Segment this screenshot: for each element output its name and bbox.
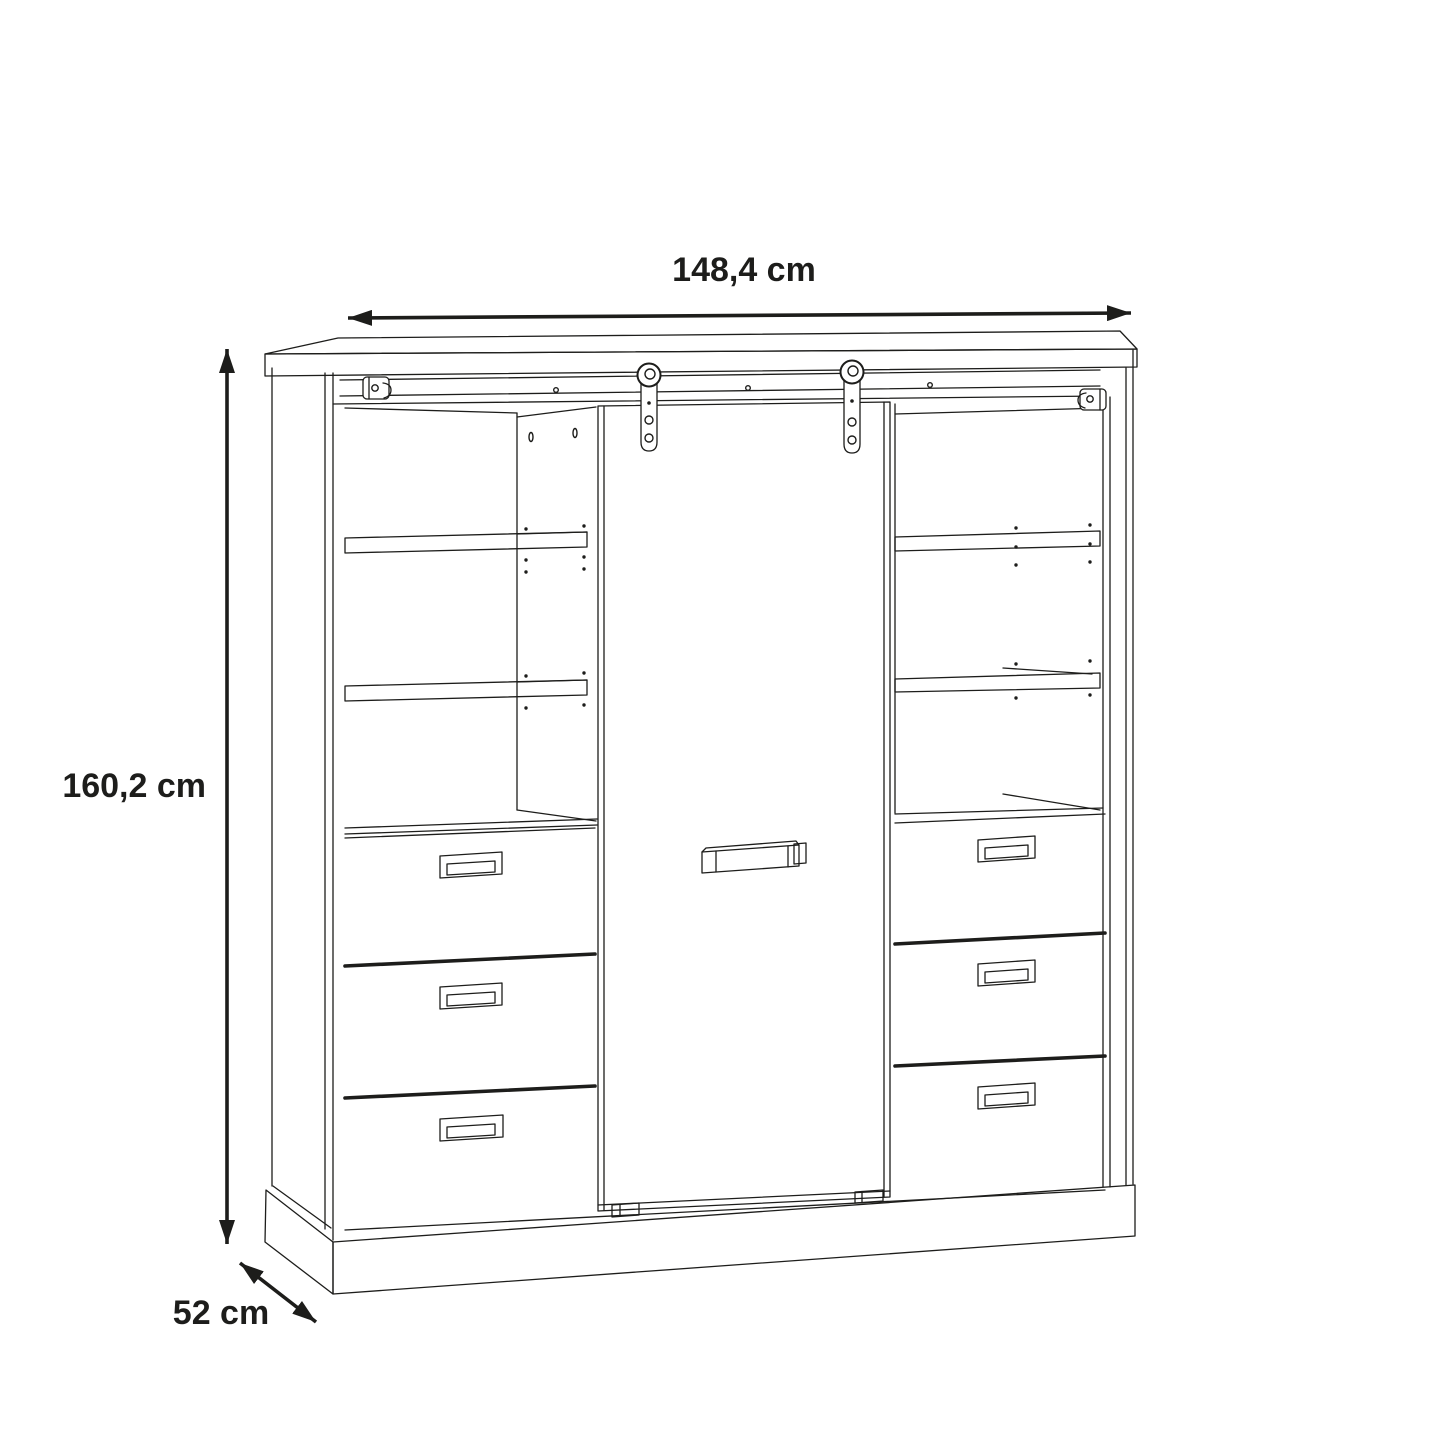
right-drawer-2-handle xyxy=(978,960,1035,986)
height-dimension-label: 160,2 cm xyxy=(62,767,206,805)
right-shelf-2 xyxy=(895,668,1100,692)
right-shelf-1 xyxy=(895,531,1100,551)
width-dimension: 148,4 cm xyxy=(348,251,1131,318)
left-drawer-stack xyxy=(345,828,595,1141)
left-roller-hanger xyxy=(638,364,661,452)
depth-dimension-label: 52 cm xyxy=(173,1294,269,1332)
width-dimension-arrow xyxy=(348,313,1131,318)
left-side-panel xyxy=(272,368,333,1240)
cornice-top-board xyxy=(265,331,1137,376)
wardrobe-technical-drawing: 148,4 cm 160,2 cm 52 cm xyxy=(0,0,1445,1445)
rail-screw xyxy=(746,386,751,391)
right-roller-hanger xyxy=(841,361,864,454)
right-side-panel xyxy=(1103,350,1133,1187)
width-dimension-label: 148,4 cm xyxy=(672,251,816,289)
right-drawer-3-handle xyxy=(978,1083,1035,1109)
rail-screw xyxy=(928,383,933,388)
left-drawer-3-handle xyxy=(440,1115,503,1141)
rail-end-bracket-right xyxy=(1078,389,1106,410)
rail-screw xyxy=(554,388,559,393)
left-drawer-1-handle xyxy=(440,852,502,878)
diagram-canvas: 148,4 cm 160,2 cm 52 cm xyxy=(0,0,1445,1445)
sliding-door xyxy=(598,402,890,1217)
right-shelf-compartment xyxy=(895,404,1103,814)
right-drawer-1-handle xyxy=(978,836,1035,862)
rail-end-bracket-left xyxy=(363,377,391,399)
depth-dimension: 52 cm xyxy=(173,1263,316,1332)
left-shelf-2 xyxy=(345,680,587,701)
left-shelf-1 xyxy=(345,532,587,553)
height-dimension: 160,2 cm xyxy=(62,349,227,1244)
right-drawer-stack xyxy=(895,814,1105,1109)
left-shelf-compartment xyxy=(345,407,597,834)
left-drawer-2-handle xyxy=(440,983,502,1009)
